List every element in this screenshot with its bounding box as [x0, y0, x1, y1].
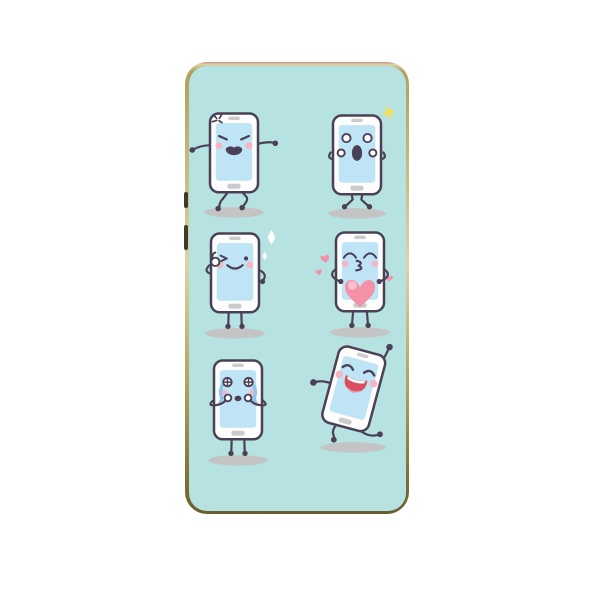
speaker [232, 363, 244, 366]
winking-phone-character [187, 222, 283, 342]
diamond-sparkle-icon [267, 229, 275, 244]
home-button [231, 430, 244, 435]
hand [189, 147, 195, 153]
ground-shadow [208, 455, 268, 466]
hand-on-face [369, 149, 376, 156]
speaker [354, 235, 366, 238]
foot [215, 205, 221, 211]
foot [365, 322, 370, 327]
hand [310, 379, 317, 386]
diamond-sparkle-icon [262, 251, 267, 260]
cheek [245, 142, 252, 149]
dot-eye [243, 256, 247, 260]
product-photo [0, 0, 600, 600]
fist-at-mouth [224, 394, 231, 401]
foot [377, 431, 383, 437]
gasping-mouth [351, 145, 361, 161]
ground-shadow [320, 442, 385, 453]
tear-stream [253, 385, 256, 403]
heart-icon [315, 268, 323, 275]
yellow-sparkle-icon [379, 103, 397, 121]
ground-shadow [205, 328, 265, 339]
speaker [228, 116, 240, 119]
case-back-panel [189, 66, 406, 511]
shocked-phone-character [309, 104, 405, 224]
foot [228, 450, 233, 455]
kissing-phone-character [312, 221, 408, 341]
tilted-phone [320, 344, 387, 432]
fist-at-mouth [244, 394, 251, 401]
hand [338, 278, 343, 283]
foot [349, 322, 354, 327]
foot [239, 204, 245, 210]
speaker [351, 118, 363, 121]
round-eye [342, 133, 350, 141]
cheek [246, 261, 253, 268]
hand [376, 278, 381, 283]
crying-phone-character [190, 349, 286, 469]
phone-case [185, 62, 409, 514]
cheek [342, 260, 349, 267]
cheek [215, 142, 222, 149]
laughing-phone-character [306, 338, 402, 458]
tear-stream [219, 385, 222, 403]
foot [366, 204, 371, 209]
round-eye [363, 133, 371, 141]
ground-shadow [330, 327, 390, 338]
foot [225, 323, 230, 328]
foot [242, 450, 247, 455]
hand [386, 343, 393, 350]
case-bottom-cutout-left [215, 511, 262, 515]
home-button [227, 183, 240, 188]
ground-shadow [204, 207, 264, 218]
heart-icon [320, 254, 330, 264]
case-bottom-cutout-right [330, 511, 390, 515]
screen [216, 243, 252, 301]
hand [259, 278, 264, 283]
heart-highlight [348, 281, 357, 290]
phone-body [211, 233, 259, 312]
hand-on-face [337, 149, 344, 156]
home-button [350, 185, 363, 190]
hand [272, 140, 278, 146]
cheek [371, 260, 378, 267]
ground-shadow [328, 208, 386, 219]
angry-phone-character [186, 102, 282, 222]
foot [341, 204, 346, 209]
speaker [229, 236, 241, 239]
foot [239, 323, 244, 328]
sobbing-mouth [234, 395, 241, 401]
home-button [228, 303, 241, 308]
foot [330, 436, 336, 442]
